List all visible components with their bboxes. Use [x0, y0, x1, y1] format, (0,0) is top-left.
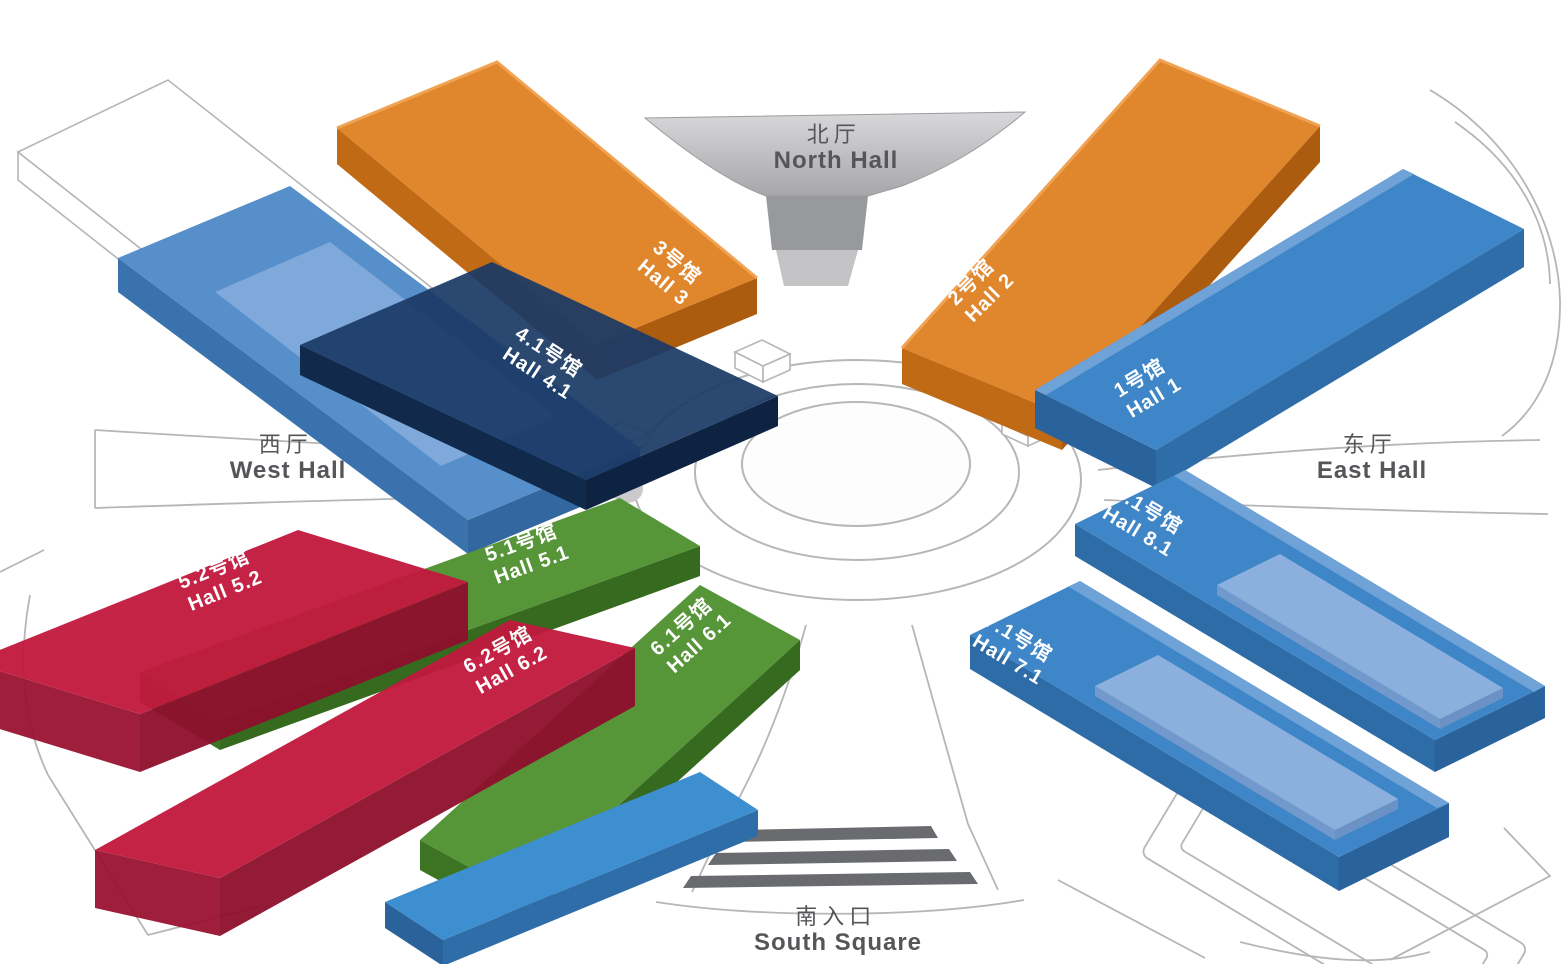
- north-hall-porch: [776, 250, 858, 286]
- venue-map: 北厅 North Hall 3号馆 Hall 3 2号馆 Hall 2 1号馆: [0, 0, 1568, 964]
- east-hall-label: 东厅 East Hall: [1317, 432, 1427, 484]
- north-hall-stem: [766, 196, 868, 250]
